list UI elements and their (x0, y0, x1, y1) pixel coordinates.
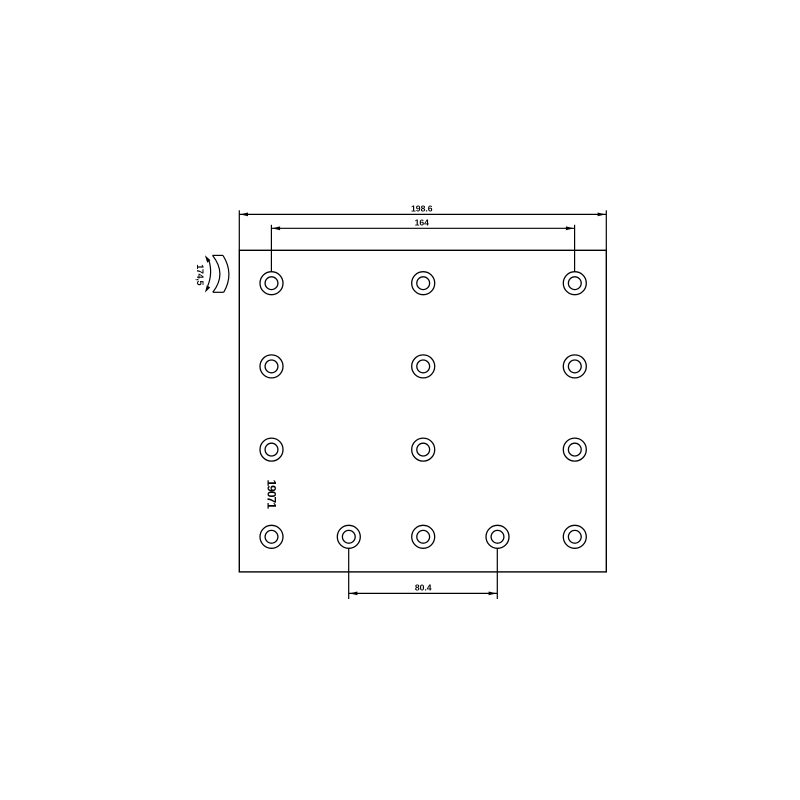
svg-text:198.6: 198.6 (411, 204, 433, 214)
svg-text:80.4: 80.4 (415, 582, 432, 592)
svg-text:19071: 19071 (264, 480, 278, 510)
svg-text:164: 164 (415, 218, 430, 228)
svg-text:174,5: 174,5 (195, 264, 205, 285)
